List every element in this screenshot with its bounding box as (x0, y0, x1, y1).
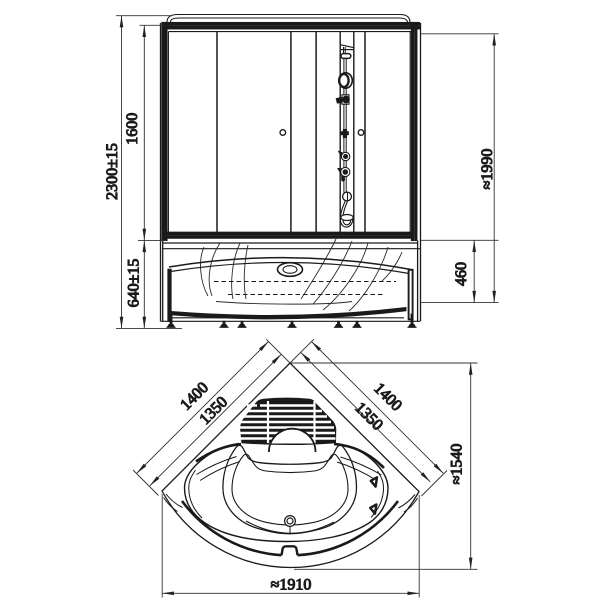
svg-text:≈1910: ≈1910 (271, 577, 312, 594)
svg-text:1600: 1600 (124, 113, 141, 145)
svg-text:460: 460 (453, 262, 470, 286)
svg-text:≈1990: ≈1990 (479, 149, 496, 190)
svg-text:640±15: 640±15 (125, 259, 142, 308)
svg-text:≈1540: ≈1540 (449, 444, 466, 485)
svg-text:2300±15: 2300±15 (104, 143, 121, 200)
